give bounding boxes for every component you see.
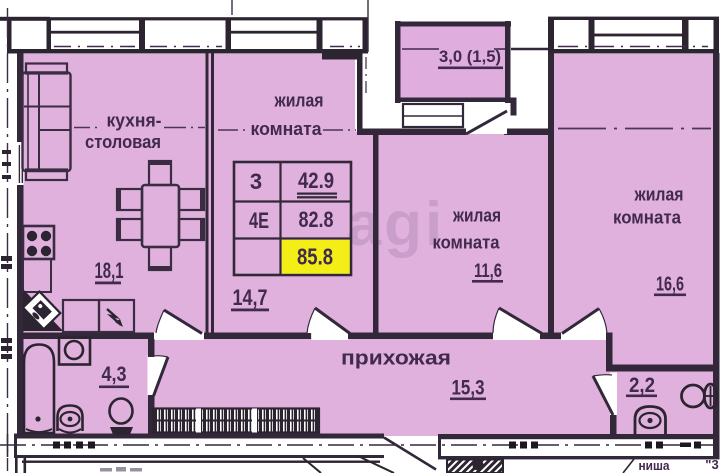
svg-text:жилая: жилая — [274, 91, 324, 111]
svg-text:agi: agi — [347, 190, 446, 259]
svg-text:2,2: 2,2 — [629, 374, 655, 397]
svg-text:кухня-: кухня- — [107, 111, 162, 131]
svg-text:прихожая: прихожая — [341, 348, 451, 370]
svg-text:4,3: 4,3 — [102, 363, 127, 386]
svg-text:42.9: 42.9 — [298, 168, 334, 193]
svg-text:3: 3 — [250, 169, 262, 194]
svg-text:жилая: жилая — [634, 185, 684, 205]
svg-text:18,1: 18,1 — [95, 258, 124, 283]
svg-text:85.8: 85.8 — [297, 244, 333, 270]
svg-text:16,6: 16,6 — [656, 274, 684, 296]
svg-text:жилая: жилая — [452, 206, 501, 226]
svg-text:15,3: 15,3 — [452, 377, 485, 400]
svg-text:комната: комната — [251, 119, 323, 139]
svg-text:82.8: 82.8 — [299, 207, 334, 232]
svg-text:3,0 (1,5): 3,0 (1,5) — [439, 47, 501, 66]
svg-text:комната: комната — [613, 208, 682, 228]
svg-text:"3: "3 — [705, 457, 718, 472]
svg-text:столовая: столовая — [85, 132, 161, 152]
svg-text:ниша: ниша — [639, 458, 671, 473]
svg-text:11,6: 11,6 — [474, 261, 502, 282]
svg-text:4E: 4E — [249, 208, 269, 233]
svg-text:14,7: 14,7 — [233, 285, 268, 310]
